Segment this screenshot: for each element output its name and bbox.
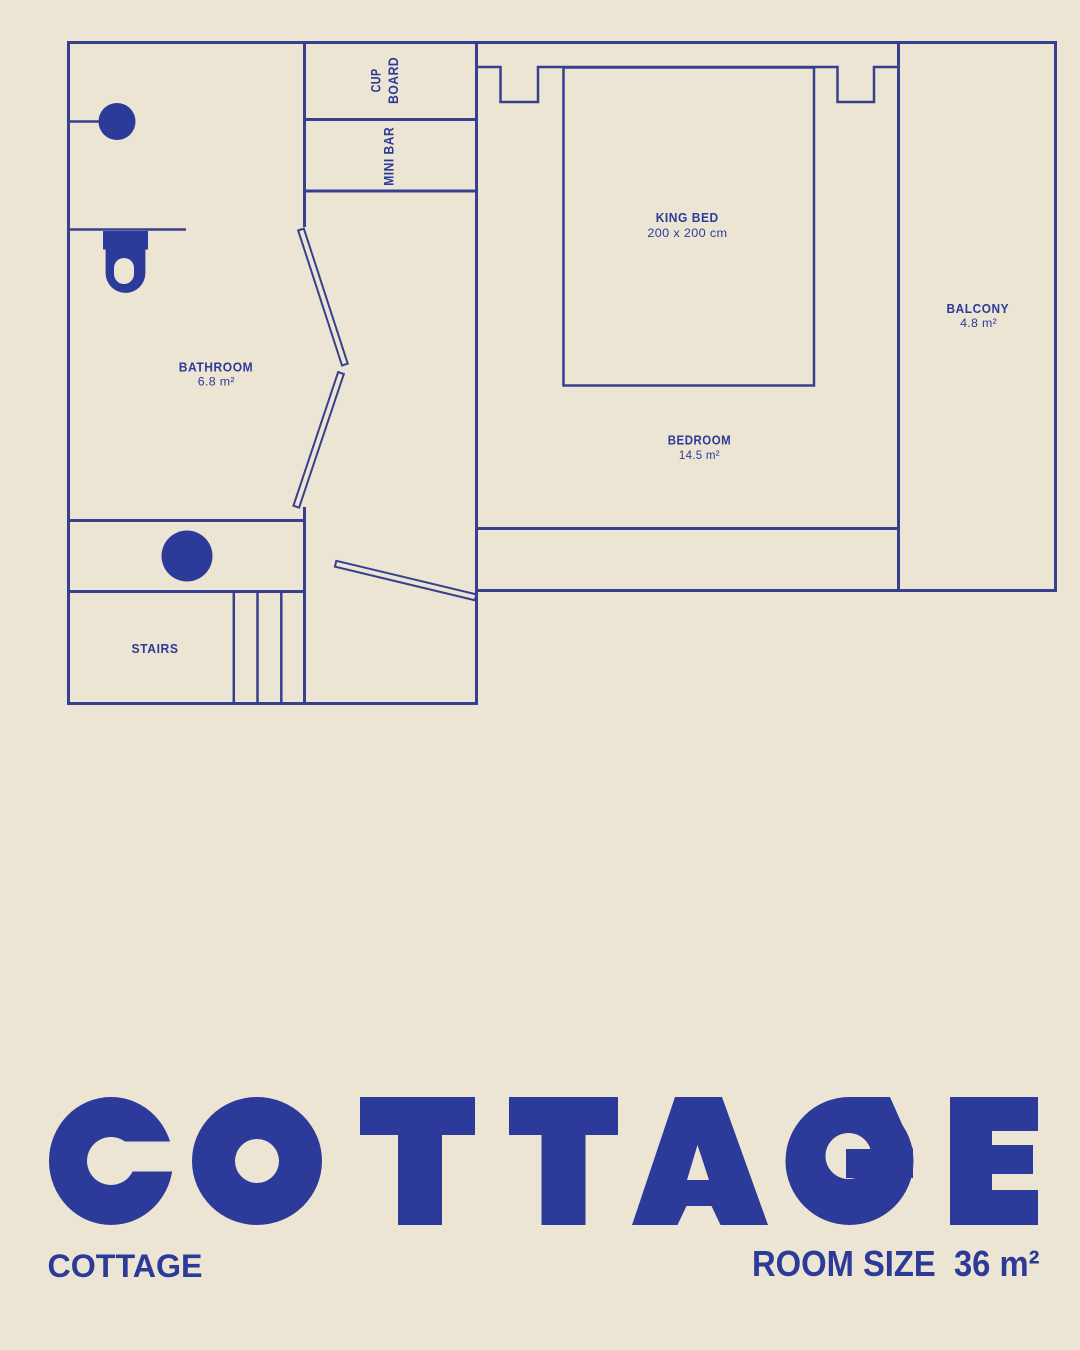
svg-text:CUP: CUP: [368, 68, 384, 92]
svg-text:BEDROOM: BEDROOM: [668, 433, 732, 448]
svg-text:STAIRS: STAIRS: [132, 641, 179, 656]
svg-text:COTTAGE: COTTAGE: [48, 1248, 203, 1284]
svg-text:14.5 m²: 14.5 m²: [679, 448, 720, 462]
svg-text:200 x 200 cm: 200 x 200 cm: [647, 226, 727, 240]
svg-text:BALCONY: BALCONY: [947, 301, 1010, 316]
svg-text:MINI BAR: MINI BAR: [381, 127, 397, 186]
svg-text:BATHROOM: BATHROOM: [179, 360, 254, 375]
svg-text:4.8 m²: 4.8 m²: [960, 316, 997, 330]
svg-text:6.8 m²: 6.8 m²: [198, 375, 235, 389]
svg-text:ROOM SIZE 36 m²: ROOM SIZE 36 m²: [752, 1243, 1040, 1284]
svg-text:KING BED: KING BED: [656, 210, 719, 225]
svg-text:BOARD: BOARD: [385, 57, 401, 104]
